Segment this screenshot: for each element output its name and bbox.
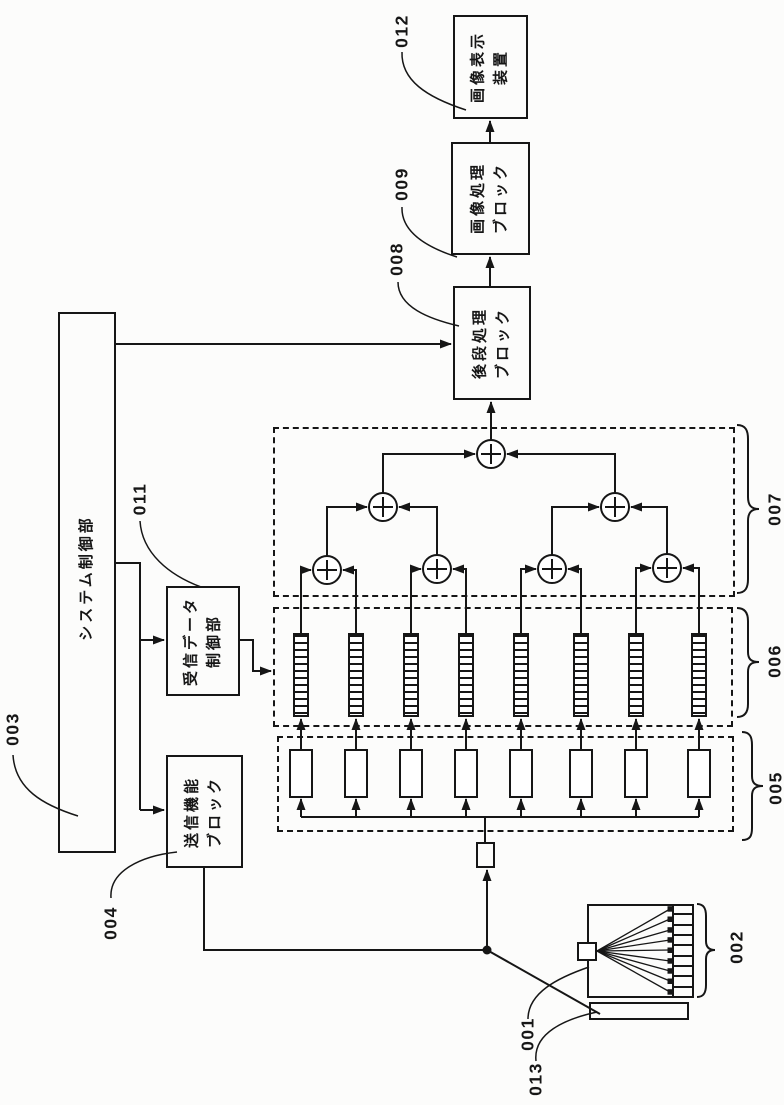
delay-line-3 xyxy=(403,633,419,717)
box-ultrasound-probe xyxy=(587,904,694,998)
group-adder-tree-007 xyxy=(273,427,735,597)
amplifier-4 xyxy=(454,749,478,798)
patent-block-diagram: 画像表示 装置 画像処理 ブロック 後段処理 ブロック システム制御部 受信デー… xyxy=(0,0,784,1105)
box-tr-switch xyxy=(476,842,495,868)
box-image-display-device xyxy=(453,15,528,119)
box-image-processing-block xyxy=(451,142,530,255)
amplifier-5 xyxy=(509,749,533,798)
brace-005 xyxy=(742,732,763,840)
amplifier-6 xyxy=(569,749,593,798)
delay-line-7 xyxy=(628,633,644,717)
delay-line-8 xyxy=(691,633,707,717)
probe-connector xyxy=(577,942,597,961)
amplifier-1 xyxy=(289,749,313,798)
delay-line-4 xyxy=(458,633,474,717)
brace-007 xyxy=(737,425,759,593)
brace-006 xyxy=(737,608,759,717)
brace-002 xyxy=(697,904,715,997)
box-tx-function-block xyxy=(166,755,243,868)
amplifier-8 xyxy=(687,749,711,798)
box-rx-data-control-unit xyxy=(166,586,240,696)
amplifier-7 xyxy=(624,749,648,798)
delay-line-1 xyxy=(293,633,309,717)
delay-line-2 xyxy=(348,633,364,717)
wire-junction-dot xyxy=(483,946,492,955)
group-delay-lines-006 xyxy=(273,607,733,727)
delay-line-5 xyxy=(513,633,529,717)
amplifier-2 xyxy=(344,749,368,798)
delay-line-6 xyxy=(573,633,589,717)
box-system-control-unit xyxy=(58,312,116,853)
box-subject-plate xyxy=(589,1002,689,1020)
box-post-stage-processing-block xyxy=(453,286,531,400)
amplifier-3 xyxy=(399,749,423,798)
